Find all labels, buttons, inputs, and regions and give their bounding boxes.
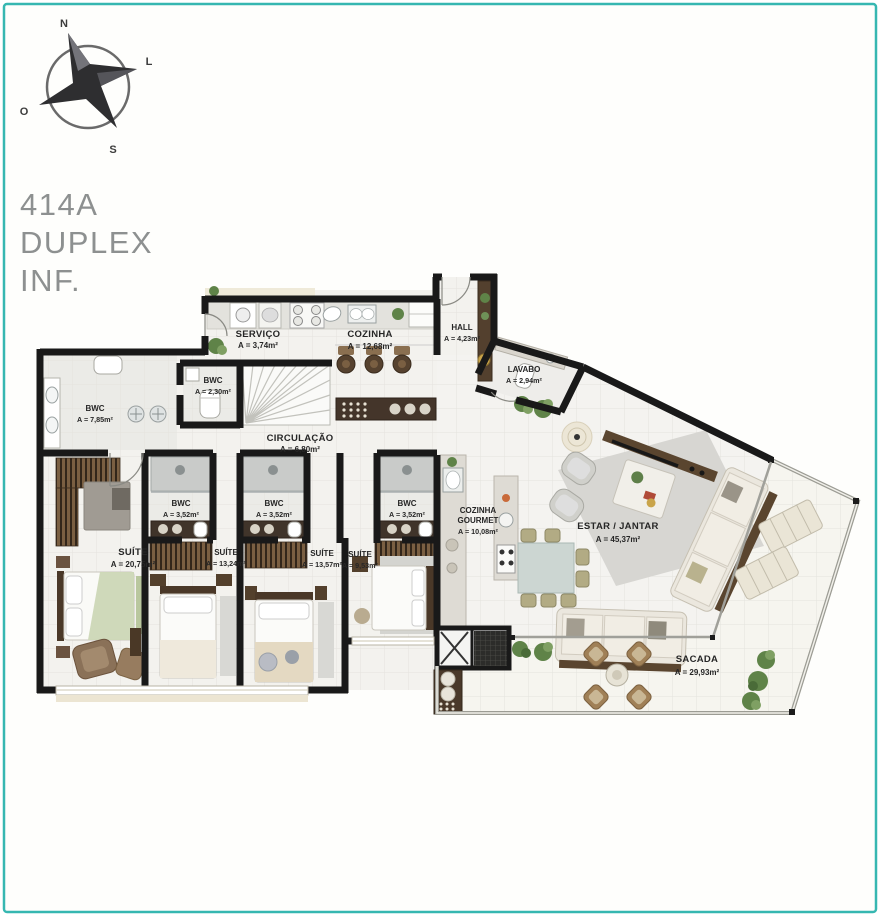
cabinet <box>130 628 141 656</box>
room-label-suite3-area: A = 13,57m² <box>302 560 342 569</box>
compass-east-label: L <box>146 56 153 68</box>
compass-north-label: N <box>60 18 68 30</box>
room-label-servico-area: A = 3,74m² <box>238 341 278 350</box>
shower-icon <box>175 465 185 475</box>
room-label-suite2-area: A = 13,24m² <box>206 559 246 568</box>
bed-headboard <box>255 592 313 600</box>
planter-ledge <box>205 288 315 296</box>
sideboard <box>336 398 436 420</box>
room-label-circulacao-area: A = 6,80m² <box>280 445 320 454</box>
room-label-bwc-suite4-name: BWC <box>397 499 416 508</box>
sofa <box>555 608 687 673</box>
compass-west-label: O <box>20 106 29 118</box>
nightstand <box>216 574 232 586</box>
room-label-suite-master-name: SUÍTE <box>118 547 147 558</box>
bed-headboard <box>57 571 64 641</box>
plant-icon <box>392 308 404 320</box>
plan-title-line2: DUPLEX <box>20 225 153 260</box>
pouf <box>259 653 277 671</box>
room-label-estar-area: A = 45,37m² <box>596 535 641 544</box>
room-label-bwc-servico-name: BWC <box>203 376 222 385</box>
plan-title-line3: INF. <box>20 263 81 298</box>
room-label-cozinha-area: A = 12,68m² <box>348 342 393 351</box>
room-label-suite3-name: SUÍTE <box>310 549 334 558</box>
room-label-lavabo-area: A = 2,94m² <box>506 376 542 385</box>
sink-icon <box>499 513 513 527</box>
compass-south-label: S <box>109 144 116 156</box>
room-label-suite4-name: SUÍTE <box>348 550 372 559</box>
room-label-bwc-social-name: BWC <box>85 404 104 413</box>
plant-icon <box>209 286 219 296</box>
room-label-cozinha-name: COZINHA <box>347 329 392 340</box>
sink-icon <box>186 368 199 381</box>
room-label-hall-area: A = 4,23m² <box>444 334 480 343</box>
elevator-block <box>437 628 509 668</box>
nightstand <box>150 574 166 586</box>
toilet-icon <box>194 522 207 537</box>
cooktop-icon <box>497 545 515 573</box>
room-label-bwc-social-area: A = 7,85m² <box>77 415 113 424</box>
shower-icon <box>268 465 278 475</box>
plant-icon <box>480 293 490 303</box>
room-label-estar-name: ESTAR / JANTAR <box>577 521 658 532</box>
toilet-icon <box>288 522 301 537</box>
room-label-sacada-area: A = 29,93m² <box>675 668 720 677</box>
room-label-suite-master-area: A = 20,75m² <box>111 560 156 569</box>
grill-icon <box>474 631 507 666</box>
nightstand <box>56 646 70 658</box>
nightstand <box>56 556 70 568</box>
pouf <box>354 608 370 624</box>
room-label-hall-name: HALL <box>451 323 472 332</box>
floor-plan-svg: N L O S 414A DUPLEX INF. <box>0 0 880 916</box>
toilet-icon <box>419 522 432 537</box>
bed-headboard <box>160 586 216 594</box>
room-label-bwc-suite2-name: BWC <box>171 499 190 508</box>
rug <box>318 602 334 678</box>
bed-headboard <box>426 566 434 630</box>
plan-title-line1: 414A <box>20 187 98 222</box>
room-label-gourmet-area: A = 10,08m² <box>458 527 498 536</box>
shower-icon <box>402 465 412 475</box>
room-label-bwc-suite2-area: A = 3,52m² <box>163 510 199 519</box>
room-label-bwc-suite3-name: BWC <box>264 499 283 508</box>
floor-plan-page: N L O S 414A DUPLEX INF. <box>0 0 880 916</box>
fridge-icon <box>409 302 435 327</box>
room-label-bwc-suite3-area: A = 3,52m² <box>256 510 292 519</box>
room-label-gourmet-name2: GOURMET <box>458 516 499 525</box>
wardrobe <box>245 542 307 568</box>
room-label-sacada-name: SACADA <box>676 654 718 665</box>
plant-icon <box>447 457 457 467</box>
room-label-suite4-area: A = 9,53m² <box>342 561 378 570</box>
room-label-bwc-suite4-area: A = 3,52m² <box>389 510 425 519</box>
room-label-bwc-servico-area: A = 2,30m² <box>195 387 231 396</box>
staircase <box>240 365 330 425</box>
wardrobe <box>150 542 212 570</box>
room-label-suite2-name: SUÍTE <box>214 548 238 557</box>
room-label-gourmet-name1: COZINHA <box>460 506 497 515</box>
room-label-circulacao-name: CIRCULAÇÃO <box>267 433 334 444</box>
pouf <box>285 650 299 664</box>
nightstand <box>315 586 327 600</box>
room-label-servico-name: SERVIÇO <box>236 329 281 340</box>
plant-icon <box>481 312 489 320</box>
room-label-lavabo-name: LAVABO <box>508 365 541 374</box>
rug <box>220 596 236 676</box>
wardrobe <box>56 488 78 546</box>
toilet-icon <box>94 356 122 374</box>
